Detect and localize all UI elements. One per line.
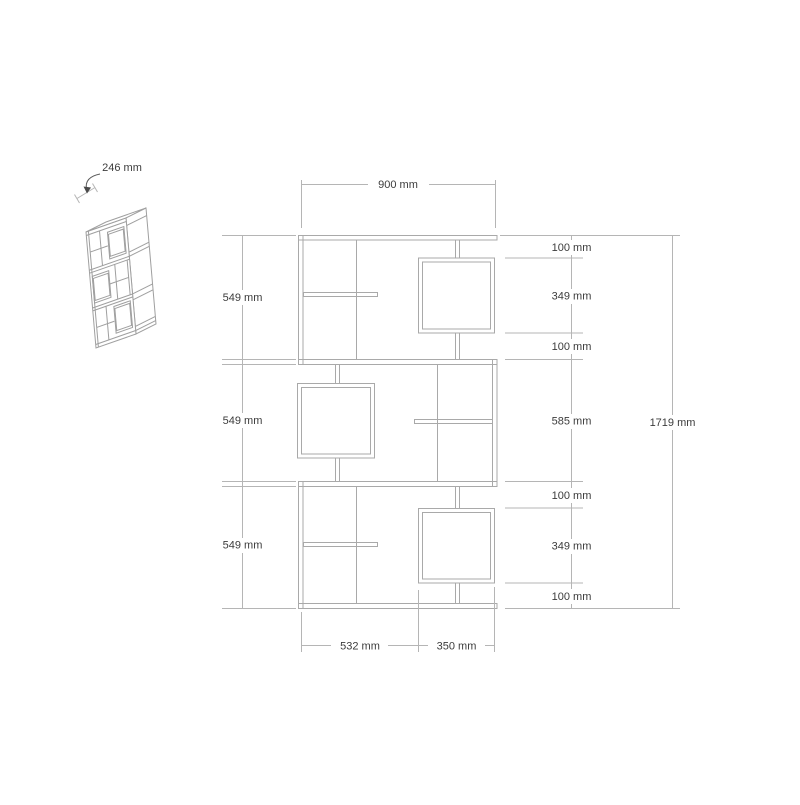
iso-depth-dimension	[75, 174, 101, 203]
bottom-shelf	[299, 604, 498, 609]
dim-label-right-3: 100 mm	[552, 341, 592, 353]
dim-label-right-7: 100 mm	[552, 591, 592, 603]
top-shelf	[299, 236, 498, 241]
drawing-canvas: 246 mm	[0, 0, 800, 800]
front-view	[298, 236, 498, 609]
dim-label-right-5: 100 mm	[552, 490, 592, 502]
dim-label-right-1: 100 mm	[552, 242, 592, 254]
dim-bottom-widths: 532 mm 350 mm	[302, 587, 495, 654]
dim-top-width: 900 mm	[302, 177, 496, 228]
dim-label-right-4: 585 mm	[552, 416, 592, 428]
arrowhead-icon	[84, 187, 92, 194]
section-middle	[298, 360, 498, 487]
section-top	[299, 236, 495, 365]
dim-label-bottom-2: 350 mm	[437, 641, 477, 653]
section-bottom	[299, 482, 495, 609]
dim-label-width: 900 mm	[378, 179, 418, 191]
dim-right-chain: 100 mm 349 mm 100 mm 585 mm 100 mm 349 m…	[505, 236, 599, 609]
leader-line	[86, 174, 100, 189]
shelf-boundary-1	[299, 360, 498, 365]
dim-label-right-6: 349 mm	[552, 541, 592, 553]
dim-label-depth: 246 mm	[102, 162, 142, 174]
dim-label-right-2: 349 mm	[552, 291, 592, 303]
dim-label-total-height: 1719 mm	[650, 417, 696, 429]
dim-total-height: 1719 mm	[500, 236, 703, 609]
dim-label-left-2: 549 mm	[223, 415, 263, 427]
iso-view: 246 mm	[75, 162, 157, 348]
shelf-boundary-2	[299, 482, 498, 487]
dim-label-left-1: 549 mm	[223, 292, 263, 304]
dim-label-bottom-1: 532 mm	[340, 641, 380, 653]
technical-drawing: 246 mm	[0, 0, 800, 800]
dim-left-chain: 549 mm 549 mm 549 mm	[215, 236, 296, 609]
dim-label-left-3: 549 mm	[223, 540, 263, 552]
